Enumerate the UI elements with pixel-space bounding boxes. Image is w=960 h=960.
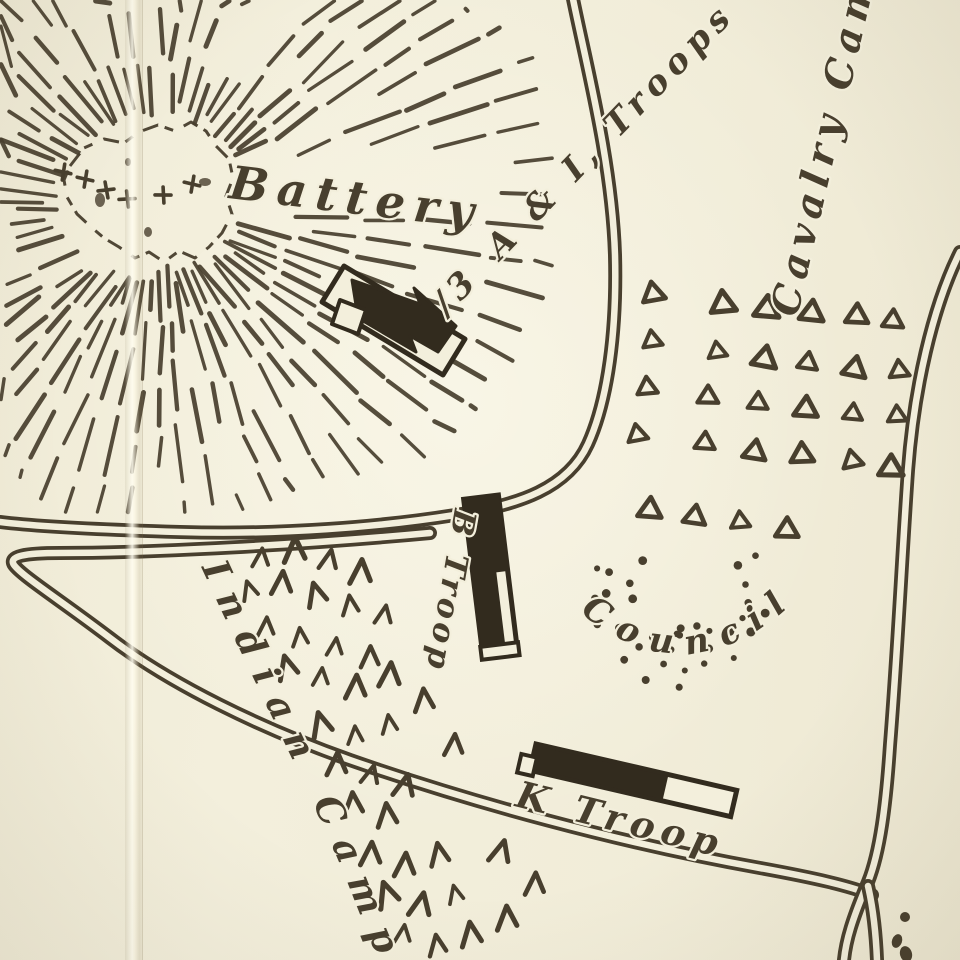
tent-triangle-symbol: [730, 510, 751, 527]
hachure-stroke: [535, 261, 552, 266]
hachure-stroke: [254, 411, 280, 460]
hachure-stroke: [515, 158, 552, 162]
hachure-stroke: [432, 382, 462, 400]
hachure-stroke: [285, 479, 293, 489]
hachure-stroke: [1, 65, 16, 96]
tent-triangle-symbol: [790, 442, 814, 462]
tipi-chevron-symbol: [444, 733, 464, 756]
hachure-stroke: [466, 9, 468, 11]
tent-triangle-symbol: [709, 289, 736, 312]
tipi-chevron-symbol: [319, 548, 340, 572]
tipi-chevron-symbol: [525, 872, 545, 896]
tent-triangle-symbol: [887, 405, 907, 422]
historic-battlefield-map: Battery ∕3 A & I, Troops Cavalry Camp B …: [0, 0, 960, 960]
hachure-stroke: [143, 323, 146, 380]
summit-ink-spot: [144, 227, 152, 237]
hachure-stroke: [205, 456, 212, 504]
council-label: Council: [575, 575, 804, 664]
hachure-stroke: [345, 112, 400, 132]
hachure-stroke: [36, 38, 57, 63]
hachure-stroke: [292, 361, 315, 385]
hachure-stroke: [386, 49, 409, 65]
hachure-stroke: [213, 384, 220, 422]
hachure-stroke: [41, 458, 57, 499]
tipi-chevron-symbol: [313, 667, 330, 687]
tipi-chevron-symbol: [377, 803, 398, 827]
hachure-stroke: [314, 232, 355, 237]
tent-triangle-symbol: [840, 448, 863, 469]
tipi-chevron-symbol: [414, 688, 434, 712]
hachure-stroke: [109, 16, 117, 57]
hachure-stroke: [402, 435, 425, 457]
tipi-chevron-symbol: [381, 714, 398, 734]
hachure-stroke: [435, 135, 485, 148]
hachure-stroke: [488, 28, 499, 35]
hachure-stroke: [128, 488, 132, 512]
note-mark: [900, 912, 910, 922]
hachure-stroke: [53, 1, 66, 26]
hachure-stroke: [260, 365, 281, 406]
tent-triangle-symbol: [697, 385, 718, 402]
tent-triangle-symbol: [641, 329, 663, 348]
hachure-stroke: [323, 395, 348, 424]
hachure-stroke: [175, 425, 182, 482]
hachure-stroke: [300, 238, 347, 251]
tent-triangle-symbol: [797, 351, 819, 370]
hachure-stroke: [477, 341, 512, 361]
hachure-stroke: [420, 21, 452, 40]
hachure-stroke: [120, 349, 133, 403]
tipi-chevron-symbol: [428, 842, 449, 867]
hachure-stroke: [330, 435, 358, 474]
hachure-stroke: [328, 70, 376, 103]
hachure-stroke: [1, 379, 4, 400]
hachure-stroke: [172, 324, 173, 351]
tipi-chevron-symbol: [304, 581, 328, 608]
hachure-stroke: [471, 406, 476, 409]
tipi-chevron-symbol: [497, 906, 517, 930]
hachure-stroke: [18, 209, 57, 210]
hachure-stroke: [355, 353, 383, 377]
hachure-stroke: [138, 66, 144, 113]
tipi-chevron-symbol: [350, 559, 372, 585]
tent-triangle-symbol: [694, 431, 715, 449]
hachure-stroke: [137, 393, 144, 432]
hachure-stroke: [298, 140, 329, 155]
hachure-stroke: [259, 474, 271, 500]
tent-triangle-symbol: [636, 376, 658, 394]
hachure-stroke: [105, 417, 118, 475]
tent-triangle-symbol: [748, 391, 769, 408]
tent-triangle-symbol: [842, 354, 869, 378]
hachure-stroke: [407, 94, 444, 111]
hachure-stroke: [496, 89, 537, 101]
road-right-centre: [844, 252, 960, 960]
tipi-chevron-symbol: [361, 646, 379, 668]
council-dot: [701, 660, 707, 666]
tent-triangle-symbol: [625, 422, 648, 442]
hachure-stroke: [160, 327, 163, 373]
tent-triangle-symbol: [888, 359, 909, 377]
tipi-chevron-symbol: [327, 637, 344, 657]
note-mark: [890, 933, 904, 950]
hachure-stroke: [33, 1, 51, 25]
hachure-stroke: [7, 275, 30, 284]
tent-triangle-symbol: [775, 517, 799, 536]
hachure-stroke: [180, 1, 182, 11]
hachure-stroke: [19, 236, 63, 250]
hachure-stroke: [160, 9, 163, 53]
hachure-stroke: [244, 436, 257, 461]
hachure-stroke: [275, 103, 299, 123]
hachure-stroke: [158, 272, 160, 321]
hachure-stroke: [79, 419, 94, 470]
hachure-stroke: [149, 68, 151, 115]
hachure-stroke: [239, 77, 262, 109]
hachure-stroke: [171, 25, 177, 59]
hachure-stroke: [64, 395, 88, 444]
tent-triangle-symbol: [879, 455, 904, 476]
hachure-stroke: [191, 321, 205, 369]
hachure-stroke: [9, 112, 39, 131]
hachure-stroke: [361, 401, 390, 424]
council-dot: [638, 556, 647, 565]
council-dot: [734, 561, 743, 570]
hachure-stroke: [426, 39, 479, 64]
hachure-stroke: [223, 310, 251, 356]
council-dot: [605, 568, 613, 576]
hachure-stroke: [206, 21, 216, 47]
hachure-stroke: [357, 257, 413, 268]
hachure-stroke: [129, 14, 134, 57]
tipi-chevron-symbol: [488, 838, 513, 866]
tent-triangle-symbol: [706, 340, 727, 358]
tent-triangle-symbol: [751, 344, 779, 368]
tipi-chevron-symbol: [446, 884, 464, 904]
hachure-stroke: [498, 124, 538, 133]
tent-triangle-symbol: [882, 309, 904, 328]
hachure-stroke: [180, 59, 190, 102]
council-dot: [626, 580, 634, 588]
council-dot: [620, 656, 628, 664]
tipi-chevron-symbol: [271, 570, 292, 595]
hachure-stroke: [192, 390, 202, 442]
hachure-stroke: [13, 343, 36, 369]
hachure-stroke: [231, 383, 242, 424]
council-dot: [594, 565, 600, 571]
hachure-stroke: [16, 395, 45, 439]
hachure-stroke: [40, 252, 77, 269]
hachure-stroke: [31, 412, 54, 458]
summit-ink-spot: [125, 158, 131, 166]
hachure-stroke: [20, 470, 22, 477]
hachure-stroke: [173, 361, 178, 410]
council-dot: [742, 581, 749, 588]
hachure-stroke: [102, 352, 117, 398]
hachure-stroke: [19, 161, 63, 176]
hachure-stroke: [268, 36, 293, 65]
council-dot: [731, 655, 737, 661]
tipi-chevron-symbol: [427, 934, 446, 957]
tent-triangle-symbol: [742, 438, 768, 460]
tipi-chevron-symbol: [348, 726, 363, 744]
cavalry-camp-label: Cavalry Camp: [762, 0, 893, 320]
cavalry-tent-symbols: [625, 280, 909, 537]
hachure-stroke: [519, 58, 533, 62]
hachure-stroke: [159, 438, 162, 466]
hachure-stroke: [184, 502, 185, 512]
cross-arm: [127, 191, 129, 207]
tipi-chevron-symbol: [408, 891, 433, 919]
hachure-stroke: [167, 266, 169, 307]
hachure-stroke: [330, 1, 361, 21]
hachure-stroke: [88, 321, 101, 347]
hachure-stroke: [18, 317, 46, 340]
summit-ink-spot: [95, 193, 105, 207]
hachure-stroke: [19, 76, 54, 111]
hachure-stroke: [299, 33, 322, 56]
hachure-stroke: [51, 340, 79, 383]
hachure-stroke: [97, 486, 104, 512]
hachure-stroke: [183, 269, 201, 313]
hachure-stroke: [309, 62, 352, 91]
hachure-stroke: [1, 172, 54, 182]
tent-triangle-symbol: [843, 402, 864, 419]
map-labels: Battery ∕3 A & I, Troops Cavalry Camp B …: [193, 0, 893, 960]
tipi-chevron-symbol: [345, 674, 366, 699]
tent-triangle-symbol: [640, 280, 666, 302]
hachure-stroke: [314, 351, 356, 393]
tipi-chevron-symbol: [341, 595, 358, 616]
hachure-stroke: [291, 416, 309, 453]
council-dot: [752, 552, 759, 559]
hachure-stroke: [435, 421, 455, 431]
hachure-stroke: [190, 1, 201, 41]
tipi-chevron-symbol: [394, 852, 415, 877]
hachure-stroke: [487, 282, 543, 298]
note-mark: [898, 945, 914, 960]
tipi-chevron-symbol: [375, 604, 394, 626]
tipi-chevron-symbol: [379, 662, 401, 688]
hachure-stroke: [413, 1, 435, 15]
hachure-stroke: [124, 69, 134, 108]
council-dot: [682, 667, 688, 673]
tent-triangle-symbol: [638, 496, 663, 517]
hachure-stroke: [371, 127, 418, 145]
hachure-stroke: [242, 1, 249, 4]
council-dot: [676, 684, 683, 691]
hachure-stroke: [455, 71, 500, 87]
map-canvas: Battery ∕3 A & I, Troops Cavalry Camp B …: [0, 0, 960, 960]
tipi-chevron-symbol: [460, 921, 482, 947]
hachure-stroke: [430, 105, 487, 124]
hachure-stroke: [313, 460, 323, 477]
council-dot: [642, 676, 650, 684]
hachure-stroke: [236, 495, 243, 509]
hachure-stroke: [388, 381, 426, 410]
tent-triangle-symbol: [845, 303, 869, 323]
council-dot: [628, 594, 637, 603]
tent-triangle-symbol: [683, 503, 708, 524]
hachure-stroke: [480, 315, 520, 330]
hachure-stroke: [150, 282, 151, 310]
tipi-chevron-symbol: [292, 627, 308, 646]
hachure-stroke: [269, 354, 293, 385]
hachure-stroke: [379, 73, 415, 94]
hachure-stroke: [5, 445, 9, 456]
tent-triangle-symbol: [794, 395, 819, 416]
hachure-stroke: [96, 1, 110, 3]
hill-summit: [64, 122, 233, 262]
hachure-stroke: [358, 439, 381, 462]
hachure-stroke: [366, 22, 404, 50]
hachure-stroke: [222, 1, 230, 6]
hachure-stroke: [12, 220, 44, 224]
hachure-stroke: [44, 322, 71, 360]
hachure-stroke: [66, 488, 74, 512]
hachure-stroke: [368, 238, 409, 244]
cross-arm: [163, 187, 164, 203]
map-edge-fragments: [890, 912, 914, 960]
hachure-stroke: [1, 1, 22, 20]
hachure-stroke: [132, 447, 136, 472]
hachure-stroke: [359, 1, 399, 27]
hachure-stroke: [1, 189, 56, 196]
hachure-stroke: [244, 322, 262, 343]
b-troop-open-end: [480, 642, 519, 660]
hill-summit-outline: [64, 122, 233, 262]
battery-label: Battery: [225, 155, 486, 240]
hachure-stroke: [74, 31, 95, 70]
hachure-stroke: [17, 227, 52, 237]
hachure-stroke: [1, 202, 42, 203]
hachure-stroke: [16, 370, 37, 394]
